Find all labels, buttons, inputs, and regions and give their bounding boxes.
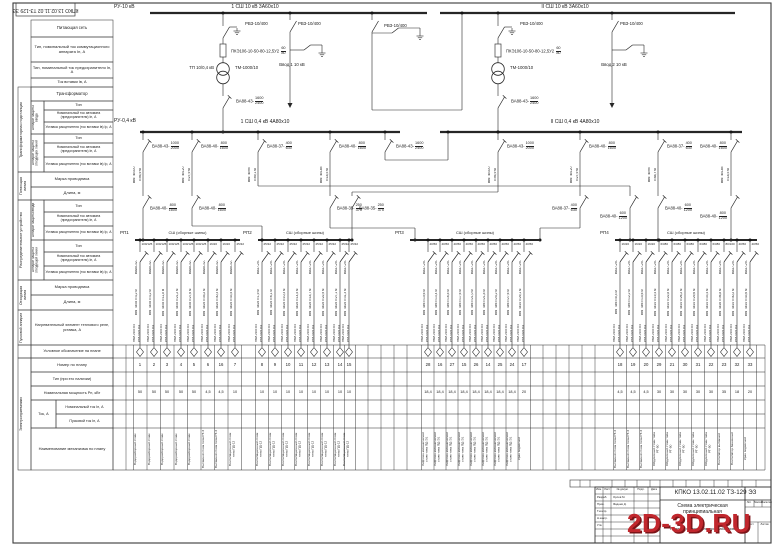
rated-power: 4,5 [630,390,635,394]
title-block-col-header: Лист [604,489,610,492]
title-block-col-header: Подп. [637,489,644,492]
rp-feeder-frac-label: 25/32 [329,243,337,246]
breaker-label: ВА88-43-16002400 [236,97,263,106]
left-table-row-label: Условное обозначение на плане [31,345,113,358]
relay-label: РТЛ-1021 О4 [486,321,491,346]
left-table-row-label: Номинальный ток автомата (предохранителя… [44,110,113,122]
rated-power: 10 [273,390,277,394]
rp-feeder-cable: ВВГ 4х6 l=8,4 м [615,284,620,320]
rated-power: 18,4 [448,390,455,394]
signature-name: Фадеев Д. [613,503,626,506]
mechanism-name: Обдувочный стояк типа РТ-50 [679,430,691,468]
rated-power: 10 [286,390,290,394]
rp-feeder-breaker-type: ВА47-29- [423,253,428,281]
left-table-row-label: Номинальный ток автомата (предохранителя… [44,212,113,226]
feeder-breaker-label: ВА88-40-8001600 [589,142,616,151]
rp-feeder-cable: ВВГ 4х10 l=29,6 м [693,284,698,320]
rp-name-label: РП3 [395,231,404,236]
left-table-row-label: Уставка расцепителя (ток вставки Iв) Iр,… [44,226,113,240]
mechanism-name: Лифтово-механический стояк типа ПД-Э1 [434,430,446,468]
relay-label: РТЛ-1021 О4 [192,321,197,346]
mechanism-name: Вентиляционный стояк типа ПД-12 [269,430,281,468]
rp-feeder-cable: ВВГ 4х16 l=36,8 м [719,284,724,320]
rp-feeder-breaker-type: ВА47-29- [471,253,476,281]
left-table-row-label: Номинальный ток автомата (предохранителя… [44,252,113,266]
rp-feeder-frac-label: 40/50 [514,243,522,246]
cable-length-label: l=18,5 м [326,156,331,194]
rated-power: 18,4 [484,390,491,394]
left-table-row-label: Ток вставки Iв, А [31,78,113,87]
rp-feeder-breaker-type: ВА88-32- [149,253,154,281]
mechanism-name: Вентилятор вытяжной [718,430,730,468]
relay-label: РТЛ-1021 О4 [450,321,455,346]
rp-feeder-cable: ВВГ 4х6 l=10,6 м [423,284,428,320]
rp-feeder-cable: ВВГ 4х10 l=33,4 м [706,284,711,320]
plan-number: 8 [261,363,263,368]
left-table-row-label: Тип [44,200,113,212]
rp-feeder-breaker-type: ВА88-32- [203,253,208,281]
plan-number: 15 [462,363,467,368]
bus-tie-breaker-label: ВА88-43-16002400 [396,142,423,151]
plan-number: 17 [522,363,527,368]
plan-number: 14 [338,363,343,368]
relay-label: РТЛ-1021 О4 [233,321,238,346]
left-table-row-label: Номинальная мощность Рн, кВт [31,386,113,400]
relay-label: РТЛ-1021 О4 [438,321,443,346]
rp-feeder-cable: ВВГ 4х35 l=27,6 м [189,284,194,320]
rp-feeder-cable: ВВГ 4х35 l=4,2 м [135,284,140,320]
rated-power: 4,5 [218,390,223,394]
plan-number: 33 [748,363,753,368]
relay-label: РТЛ-1021 О4 [286,321,291,346]
relay-label: РТЛ-1021 О4 [462,321,467,346]
rated-power: 30 [670,390,674,394]
rp-feeder-breaker-type: ВА47-29- [435,253,440,281]
relay-label: РТЛ-1021 О4 [206,321,211,346]
rated-power: 10 [338,390,342,394]
rp-feeder-breaker-type: ВА47-29- [483,253,488,281]
mechanism-name: Обдувочный стояк типа РТ-50 [666,430,678,468]
left-table-row-label: Нагревательный элемент теплового реле, у… [31,310,113,345]
sheets-label: Листов [760,524,768,527]
hv-bus1-label: 1 СШ 10 кВ 3А60х10 [231,5,278,10]
rp-feeder-frac-label: 100/125 [196,243,207,246]
fuse-label: ПКЭ106-10-50-80-12,5У2 6080 [506,47,561,56]
plan-number: 5 [193,363,195,368]
mechanism-name: Лифтово-механический стояк типа ПД-Э1 [470,430,482,468]
rp-feeder-cable: ВВГ 4х10 l=22,8 м [667,284,672,320]
left-table-row-label: Длина, м [31,187,113,200]
rated-power: 30 [696,390,700,394]
rated-power: 18,4 [436,390,443,394]
rp-input-breaker-label: ВА88-40-6001200 [665,204,692,213]
plan-number: 13 [325,363,330,368]
ru10-label: РУ-10 кВ [114,5,135,10]
mechanism-name: Вентиляционный стояк типа ПД-12 [321,430,333,468]
relay-label: РТЛ-1021 О4 [683,321,688,346]
plan-number: 4 [180,363,182,368]
rated-power: 35 [722,390,726,394]
plan-number: 23 [722,363,727,368]
rp-feeder-breaker-type: ВА47-29- [507,253,512,281]
rp-input-breaker-label: ВА88-35-250375 [359,204,384,213]
plan-number: 30 [683,363,688,368]
disconnector-label: РВЗ-10/400 [245,22,268,27]
cable-label: ВВГ 4х120 [182,156,187,194]
rp-feeder-cable: ВВГ 4х35 l=4,2 м [149,284,154,320]
title-block-col-header: Изм. [596,489,602,492]
relay-label: РТЛ-1021 О4 [670,321,675,346]
incomer-label: Ввод 2 10 кВ [601,63,626,68]
left-table-row-label: Питающая сеть [31,20,113,37]
relay-label: РТЛ-1021 О4 [510,321,515,346]
rated-power: 10 [325,390,329,394]
rp-feeder-breaker-type: ВА47-29- [257,253,262,281]
mechanism-name: Водоразборный стояк [161,430,173,468]
mechanism-name: Лифтово-механический стояк типа ПД-Э1 [446,430,458,468]
rated-power: 30 [709,390,713,394]
rp-feeder-cable: ВВГ 4х6 l=17,6 м [459,284,464,320]
plan-number: 2 [153,363,155,368]
left-table-row-label: Тип, номинальный ток коммутационного апп… [31,37,113,62]
signature-name: Орлов М. [613,496,625,499]
rated-power: 18,4 [460,390,467,394]
left-table-group-label: Электроприемники [19,359,30,469]
feeder-breaker-label: ВА88-40-8001600 [700,142,727,151]
rp-feeder-breaker-type: ВА47-29- [296,253,301,281]
rp-feeder-breaker-type: ВА47-29- [706,253,711,281]
hv-bus2-label: II СШ 10 кВ 3А60х10 [541,5,588,10]
relay-label: РТЛ-1021 О4 [138,321,143,346]
rp-feeder-breaker-type: ВА47-29- [641,253,646,281]
rated-power: 10 [233,390,237,394]
plan-number: 19 [631,363,636,368]
mechanism-name: Лифтово-механический стояк типа ПД-Э1 [482,430,494,468]
mechanism-name: Вентиляционный стояк типа ПД-12 [343,430,355,468]
rp-feeder-frac-label: 63/80 [713,243,721,246]
lit-label: Лит. [747,502,752,505]
rated-power: 50 [152,390,156,394]
relay-label: РТЛ-1021 О4 [299,321,304,346]
relay-label: РТЛ-1021 О4 [165,321,170,346]
rated-power: 50 [165,390,169,394]
rp-feeder-frac-label: 25/32 [264,243,272,246]
left-table-row-label: Тип [44,240,113,252]
scale-label: Масштаб [761,502,772,505]
mechanism-name: Вентиляционный стояк типа ПД-12 [282,430,294,468]
rp-feeder-frac-label: 40/50 [478,243,486,246]
rp-feeder-frac-label: 25/32 [277,243,285,246]
left-table-row-label: Марка проводника [31,280,113,295]
plan-number: 27 [450,363,455,368]
rp-feeder-breaker-type: ВА47-29- [719,253,724,281]
rp-feeder-breaker-type: ВА88-32- [135,253,140,281]
rp-feeder-frac-label: 40/50 [739,243,747,246]
rp-feeder-cable: ВВГ 4х25 l=31,3 м [344,284,349,320]
cable-length-label: l=56,9 м [139,156,144,194]
rp-input-breaker-label: ВА88-40-6001200 [600,212,627,221]
relay-label: РТЛ-1021 О4 [722,321,727,346]
feeder-breaker-label: ВА88-40-8001600 [339,142,366,151]
rp-feeder-breaker-type: ВА47-29- [335,253,340,281]
rp-feeder-frac-label: 40/50 [490,243,498,246]
left-table-row-label: Тип [44,134,113,143]
left-table-row-label: Трансформатор [31,87,113,101]
cable-length-label: l=18,5 м [727,156,732,194]
incomer-label: Ввод 1 10 кВ [279,63,304,68]
rp-feeder-frac-label: 16/20 [648,243,656,246]
relay-label: РТЛ-1021 О4 [260,321,265,346]
rp-feeder-cable: ВВГ 4х6 l=21,8 м [483,284,488,320]
rp-feeder-frac-label: 63/80 [687,243,695,246]
mechanism-name: Лифтово-механический стояк типа ПД-Э1 [506,430,518,468]
mechanism-name: Вентилятор башенный [731,430,743,468]
left-table-group-label: Отходящая линия [19,281,30,309]
corner-stamp-doc-number: КПКО 13.02.11.02 ТЗ-129 ЭЗ [16,3,75,16]
left-table-row-label: Длина, м [31,295,113,310]
rated-power: 4,5 [617,390,622,394]
rp-feeder-frac-label: 100/125 [142,243,153,246]
left-table-row-label: Ток, А [31,400,56,428]
rated-power: 10 [347,390,351,394]
plan-number: 10 [286,363,291,368]
rp-feeder-frac-label: 63/80 [674,243,682,246]
relay-label: РТЛ-1021 О4 [426,321,431,346]
plan-number: 21 [670,363,675,368]
rp-feeder-breaker-type: ВА47-29- [693,253,698,281]
rp-feeder-breaker-type: ВА47-29- [745,253,750,281]
rp-feeder-frac-label: 25/32 [316,243,324,246]
labels-layer: КПКО 13.02.11.02 ТЗ-129 ЭЗ РУ-10 кВ 1 СШ… [0,0,780,551]
rp-bus-label: СШ (сборные шины) [667,231,705,235]
rp-input-breaker-label: ВА88-40-8001200 [700,212,727,221]
rated-power: 20 [748,390,752,394]
rp-feeder-frac-label: 63/80 [700,243,708,246]
rp-feeder-cable: ВВГ 4х10 l=26,2 м [680,284,685,320]
rp-feeder-cable: ВВГ 4х6 l=15,6 м [641,284,646,320]
mechanism-name: Обдувочный стояк типа РТ-50 [653,430,665,468]
signature-role: Т.контр. [597,510,607,513]
plan-number: 3 [166,363,168,368]
cable-length-label: l=48,7 м [654,156,659,194]
plan-number: 14 [486,363,491,368]
rated-power: 18,4 [508,390,515,394]
rp-name-label: РП2 [243,231,252,236]
rp-feeder-cable: ВВГ 4х6 l=25,2 м [495,284,500,320]
left-table-row-label: Уставка расцепителя (ток вставки Iв) Iр,… [44,266,113,280]
mechanism-name: Вентиляционный стояк типа ПД-12 [295,430,307,468]
rp-feeder-cable: ВВГ 4х25 l=6,1 м [270,284,275,320]
mechanism-name: Лифтово-механический стояк типа ПД-Э1 [458,430,470,468]
left-table-row-label: Наименование механизма по плану [31,428,113,470]
plan-number: 26 [474,363,479,368]
cable-label: ВВГ 4х95 [648,156,653,194]
left-table-group-label: Питающая линия [19,173,30,199]
plan-number: 1 [139,363,141,368]
relay-label: РТЛ-1021 О4 [696,321,701,346]
plan-number: 20 [644,363,649,368]
left-table-row-label: Номинальный ток Iн, А [56,400,113,414]
disconnector-label: РВЗ-10/400 [520,22,543,27]
plan-number: 9 [274,363,276,368]
signature-role: Разраб. [597,496,607,499]
rated-power: 10 [312,390,316,394]
rp-feeder-cable: ВВГ 4х25 l=35,2 м [203,284,208,320]
rp-feeder-breaker-type: ВА47-29- [680,253,685,281]
cable-label: ВВГ 4х120 [570,156,575,194]
rp-feeder-frac-label: 63/80 [661,243,669,246]
relay-label: РТЛ-1021 О4 [498,321,503,346]
rp-feeder-breaker-type: ВА88-32- [162,253,167,281]
rp-feeder-frac-label: 40/50 [752,243,760,246]
relay-label: РТЛ-1021 О4 [644,321,649,346]
title-block-col-header: Дата [651,489,657,492]
mechanism-name: Обдувочный стояк типа РТ-50 [692,430,704,468]
rp-input-breaker-label: ВА88-40-8001600 [199,204,226,213]
rated-power: 4,5 [643,390,648,394]
rp-feeder-cable: ВВГ 4х10 l=43,6 м [745,284,750,320]
rp-feeder-cable: ВВГ 4х6 l=13,4 м [435,284,440,320]
rp-feeder-breaker-type: ВА88-32- [189,253,194,281]
rp-feeder-frac-label: 25/32 [342,243,350,246]
rp-feeder-breaker-type: ВА47-29- [732,253,737,281]
rp-bus-label: СШ (сборные шины) [168,231,206,235]
cable-label: ВВГ 4х185 [721,156,726,194]
rp-feeder-frac-label: 25/32 [351,243,359,246]
mechanism-name: Водоразборный стояк [148,430,160,468]
relay-label: РТЛ-1021 О4 [152,321,157,346]
left-table-group-label: Аппарат защиты отходящей линии [32,241,43,279]
left-table-row-label: Номинальный ток автомата (предохранителя… [44,143,113,157]
left-table-group-label: Пусковой аппарат [19,311,30,344]
rp-feeder-frac-label: 100/125 [156,243,167,246]
rated-power: 18,4 [472,390,479,394]
rp-feeder-breaker-type: ВА88-32- [230,253,235,281]
left-table-row-label: Тип [44,101,113,110]
mechanism-name: Вытяжной стояк типа РТ-3 [202,430,214,468]
rp-feeder-breaker-type: ВА47-29- [667,253,672,281]
rp-feeder-cable: ВВГ 4х25 l=40,3 м [216,284,221,320]
mechanism-name: Лифтово-механический стояк типа ПД-Э1 [422,430,434,468]
rp-feeder-frac-label: 25/32 [290,243,298,246]
plan-number: 6 [207,363,209,368]
plan-number: 28 [426,363,431,368]
rp-feeder-breaker-type: ВА47-29- [615,253,620,281]
watermark-2d3d: 2D-3D.RU [627,508,751,539]
relay-label: РТЛ-1021 О4 [748,321,753,346]
rp-feeder-frac-label: 40/50 [442,243,450,246]
mechanism-name: Вытяжной стояк типа РТ-3 [215,430,227,468]
rp-feeder-breaker-type: ВА47-29- [270,253,275,281]
rp-feeder-frac-label: 100/125 [183,243,194,246]
rp-feeder-breaker-type: ВА47-29- [344,253,349,281]
rp-name-label: РП4 [600,231,609,236]
left-table-group-label: Распределительное устройство [19,201,30,279]
feeder-breaker-label: ВА88-43-10002000 [507,142,534,151]
rp-feeder-frac-label: 25/32 [303,243,311,246]
mechanism-name: Кран подвесной [744,430,756,468]
rp-feeder-cable: ВВГ 4х25 l=1,9 м [257,284,262,320]
rp-feeder-breaker-type: ВА88-32- [176,253,181,281]
rated-power: 50 [192,390,196,394]
disconnector-label: РВЗ-10/400 [620,22,643,27]
feeder-breaker-label: ВА88-37-400630 [267,142,292,151]
mechanism-name: Вентиляционный стояк типа ПД-12 [308,430,320,468]
plan-number: 16 [219,363,224,368]
rp-feeder-breaker-type: ВА47-29- [322,253,327,281]
plan-number: 24 [510,363,515,368]
rated-power: 30 [683,390,687,394]
relay-label: РТЛ-1021 О4 [312,321,317,346]
rp-feeder-frac-label: 40/50 [454,243,462,246]
cable-label: ВВГ 4х300 [488,156,493,194]
mechanism-name: Водоразборный стояк [134,430,146,468]
rp-feeder-frac-label: 40/50 [466,243,474,246]
cable-label: ВВГ 4х95 [248,156,253,194]
left-table-group-label: Аппарат защиты отходящих линий [32,135,43,171]
title-block-col-header: № докум. [617,489,629,492]
mechanism-name: Лифтово-механический стояк типа ПД-Э1 [494,430,506,468]
rp-feeder-breaker-type: ВА47-29- [654,253,659,281]
mechanism-name: Вытяжной стояк типа РТ-3 [640,430,652,468]
transformer-type-label: ТМ-1000/10 [235,66,258,71]
mechanism-name: Вентиляционный стояк типа ПД-12 [229,430,241,468]
signature-role: Пров. [597,503,604,506]
rp-feeder-breaker-type: ВА47-29- [519,253,524,281]
rp-feeder-breaker-type: ВА47-29- [447,253,452,281]
rated-power: 18,4 [496,390,503,394]
rated-power: 10 [260,390,264,394]
rp-feeder-cable: ВВГ 4х25 l=18,7 м [309,284,314,320]
rated-power: 50 [138,390,142,394]
rp-feeder-frac-label: 16/20 [635,243,643,246]
feeder-breaker-label: ВА88-40-8001600 [201,142,228,151]
left-table-row-label: Уставка расцепителя (ток вставки Iв) Iр,… [44,122,113,134]
mechanism-name: Кран подвесной [518,430,530,468]
rp-input-breaker-label: ВА88-37-400630 [552,204,577,213]
relay-label: РТЛ-1021 О4 [474,321,479,346]
mechanism-name: Вентиляционный стояк типа ПД-12 [256,430,268,468]
rp-feeder-cable: ВВГ 4х25 l=14,5 м [296,284,301,320]
left-table-group-label: Аппарат защиты ввода [32,201,43,239]
rp-feeder-breaker-type: ВА47-29- [495,253,500,281]
signature-role: Н.контр. [597,517,608,520]
left-table-group-label: Трансформаторная подстанция [19,88,30,171]
rp-feeder-cable: ВВГ 4х10 l=29,1 м [519,284,524,320]
rp-feeder-cable: ВВГ 4х10 l=40,2 м [732,284,737,320]
rp-feeder-frac-label: 40/50 [502,243,510,246]
plan-number: 25 [498,363,503,368]
mechanism-name: Водоразборный стояк [188,430,200,468]
relay-label: РТЛ-1021 О4 [618,321,623,346]
plan-number: 16 [438,363,443,368]
plan-number: 18 [618,363,623,368]
cable-label: ВВГ 4х185 [320,156,325,194]
rated-power: 4,5 [205,390,210,394]
rated-power: 10 [299,390,303,394]
ru04-label: РУ-0,4 кВ [114,119,136,124]
rated-power: 18,4 [424,390,431,394]
disconnector-label: РВЗ-10/400 [384,24,407,29]
rp-feeder-frac-label: 100/125 [169,243,180,246]
rp-feeder-frac-label: 16/20 [210,243,218,246]
tp-label: ТП 10/0,4 кВ [189,66,214,71]
plan-number: 32 [735,363,740,368]
plan-number: 29 [657,363,662,368]
rp-feeder-cable: ВВГ 4х25 l=22,9 м [322,284,327,320]
relay-label: РТЛ-1021 О4 [709,321,714,346]
rp-feeder-cable: ВВГ 4х6 l=21,0 м [471,284,476,320]
